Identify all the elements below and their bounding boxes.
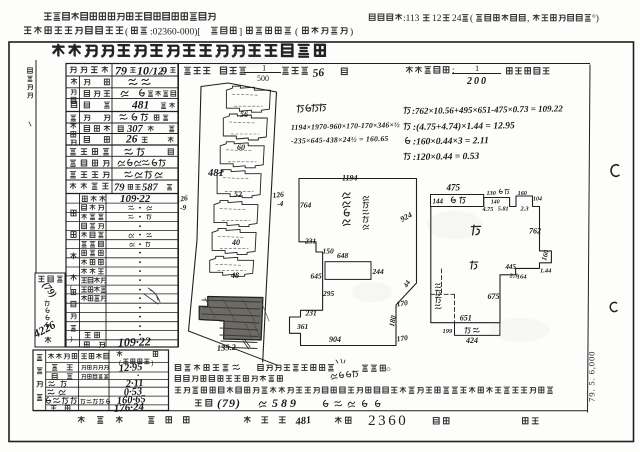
svg-text:): ): [151, 359, 154, 367]
svg-text:°): °): [592, 13, 599, 24]
svg-text:]: ]: [239, 27, 242, 38]
svg-text:2.3: 2.3: [520, 206, 530, 213]
svg-text:79. 5. 6,000: 79. 5. 6,000: [587, 351, 597, 402]
svg-text:481: 481: [294, 415, 312, 428]
svg-text:(79): (79): [217, 396, 241, 410]
svg-text:762: 762: [529, 227, 541, 236]
svg-text:481: 481: [131, 100, 149, 112]
svg-text:-4: -4: [277, 199, 283, 208]
svg-text:170: 170: [396, 298, 409, 309]
svg-text::160×0.44×3 = 2.11: :160×0.44×3 = 2.11: [413, 136, 489, 147]
svg-text:48: 48: [230, 271, 239, 280]
svg-text::(4.75+4.74)×1.44 = 12.95: :(4.75+4.74)×1.44 = 12.95: [413, 120, 515, 133]
svg-text:9: 9: [161, 64, 167, 78]
svg-text:295: 295: [322, 289, 335, 298]
svg-text:648: 648: [337, 251, 349, 260]
svg-text:176·24: 176·24: [113, 401, 145, 415]
svg-text:675: 675: [488, 292, 500, 301]
svg-text:): ): [70, 334, 73, 343]
svg-text:56: 56: [240, 110, 248, 119]
svg-text:170: 170: [396, 333, 409, 344]
svg-text:24: 24: [452, 14, 462, 24]
svg-text:,: ,: [527, 14, 529, 24]
svg-text:651: 651: [460, 314, 472, 323]
svg-text:104: 104: [533, 197, 542, 203]
svg-text:(: (: [470, 13, 473, 24]
svg-text::02360-000)[: :02360-000)[: [150, 27, 201, 38]
svg-text:144: 144: [433, 198, 444, 206]
svg-text:231: 231: [305, 309, 317, 318]
svg-text:4.75: 4.75: [482, 206, 494, 213]
svg-text:764: 764: [300, 201, 312, 210]
svg-text:231: 231: [304, 237, 316, 246]
svg-text:56: 56: [312, 67, 325, 80]
svg-text::762×10.56+495×651-475×0.73 =: :762×10.56+495×651-475×0.73 = 109.22: [412, 103, 564, 116]
svg-text:26: 26: [125, 134, 138, 146]
svg-text:150: 150: [323, 247, 335, 256]
svg-text:(79): (79): [40, 280, 59, 300]
svg-text:(: (: [295, 27, 298, 38]
svg-text:244: 244: [372, 267, 385, 276]
svg-text:424: 424: [465, 336, 478, 345]
svg-text:2360: 2360: [368, 413, 408, 429]
svg-text:10: 10: [137, 64, 149, 78]
svg-text:5.81: 5.81: [498, 206, 509, 213]
svg-text:1: 1: [475, 63, 479, 73]
svg-text::113: :113: [403, 14, 420, 24]
svg-text:1194: 1194: [342, 174, 358, 183]
svg-text:1194×1970-960×170-170×346×½: 1194×1970-960×170-170×346×½: [291, 120, 400, 132]
svg-text::120×0.44 = 0.53: :120×0.44 = 0.53: [413, 152, 480, 163]
svg-text:12: 12: [432, 14, 442, 24]
svg-text:40: 40: [231, 238, 240, 247]
svg-text:481: 481: [207, 168, 224, 179]
svg-text:(: (: [125, 27, 128, 38]
svg-text:589: 589: [272, 396, 299, 410]
svg-text:500: 500: [257, 74, 269, 83]
svg-text:-235×645-438×24½ = 160.65: -235×645-438×24½ = 160.65: [291, 134, 389, 146]
svg-text:160: 160: [518, 190, 527, 197]
svg-text:645: 645: [311, 272, 323, 281]
svg-text:52: 52: [234, 190, 242, 199]
svg-text:44: 44: [401, 279, 412, 290]
svg-text:): ): [350, 27, 353, 38]
svg-text:445: 445: [505, 263, 517, 271]
svg-text:109·22: 109·22: [118, 334, 151, 349]
svg-text:130: 130: [487, 190, 496, 197]
svg-text:199: 199: [443, 328, 454, 335]
svg-text:475: 475: [446, 183, 461, 193]
svg-text:135.2: 135.2: [216, 342, 237, 353]
svg-text:○: ○: [386, 365, 391, 374]
svg-text:79: 79: [115, 64, 127, 78]
svg-text:1.44: 1.44: [540, 268, 552, 275]
svg-text:361: 361: [296, 322, 308, 331]
svg-text:904: 904: [329, 335, 341, 344]
svg-text:79: 79: [114, 183, 125, 194]
svg-text:200: 200: [466, 76, 488, 87]
svg-text:924: 924: [399, 210, 414, 224]
svg-text:-9: -9: [180, 203, 186, 212]
svg-text:587: 587: [142, 183, 159, 194]
svg-text:109·22: 109·22: [120, 193, 151, 205]
svg-text:164: 164: [517, 274, 528, 281]
